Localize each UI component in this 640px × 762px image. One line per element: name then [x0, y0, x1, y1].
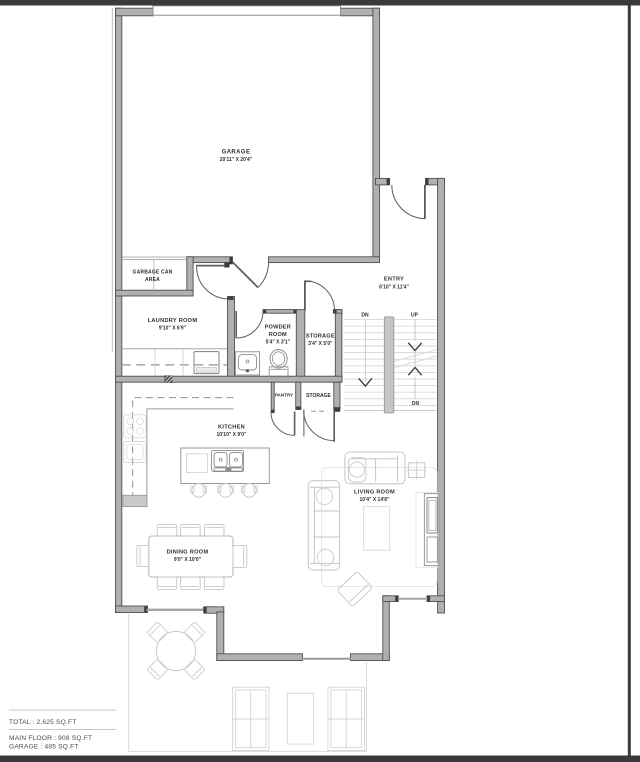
svg-text:KITCHEN: KITCHEN [218, 425, 245, 431]
svg-text:3'4" X 5'0": 3'4" X 5'0" [308, 341, 333, 347]
svg-text:STORAGE: STORAGE [306, 393, 331, 399]
svg-text:AREA: AREA [145, 277, 160, 283]
svg-text:MAIN FLOOR : 908 SQ.FT: MAIN FLOOR : 908 SQ.FT [9, 735, 92, 742]
svg-text:10'10" X 9'0": 10'10" X 9'0" [217, 432, 248, 438]
svg-text:GARBAGE CAN: GARBAGE CAN [133, 270, 173, 276]
svg-text:ENTRY: ENTRY [384, 277, 404, 283]
svg-text:PANTRY: PANTRY [275, 392, 293, 397]
svg-text:UP: UP [411, 313, 419, 319]
svg-text:9'10" X 6'9": 9'10" X 6'9" [159, 326, 187, 332]
svg-text:20'11" X 20'4": 20'11" X 20'4" [220, 157, 253, 163]
svg-text:DN: DN [412, 401, 420, 407]
svg-text:DN: DN [361, 313, 369, 319]
svg-text:ROOM: ROOM [269, 332, 287, 338]
svg-text:5'4" X 3'1": 5'4" X 3'1" [266, 339, 291, 345]
svg-text:LIVING ROOM: LIVING ROOM [354, 490, 395, 496]
svg-text:GARAGE: GARAGE [222, 150, 251, 156]
svg-text:TOTAL : 2,625 SQ.FT: TOTAL : 2,625 SQ.FT [9, 719, 76, 726]
svg-text:POWDER: POWDER [265, 325, 291, 331]
svg-text:LAUNDRY ROOM: LAUNDRY ROOM [148, 318, 198, 324]
svg-text:9'0" X 10'0": 9'0" X 10'0" [174, 557, 202, 563]
svg-text:GARAGE : 485 SQ.FT: GARAGE : 485 SQ.FT [9, 744, 79, 751]
svg-text:STORAGE: STORAGE [306, 334, 335, 340]
svg-text:DINING ROOM: DINING ROOM [167, 550, 209, 556]
svg-text:10'4" X 14'8": 10'4" X 14'8" [360, 497, 391, 503]
svg-text:6'10" X 11'4": 6'10" X 11'4" [379, 284, 409, 290]
